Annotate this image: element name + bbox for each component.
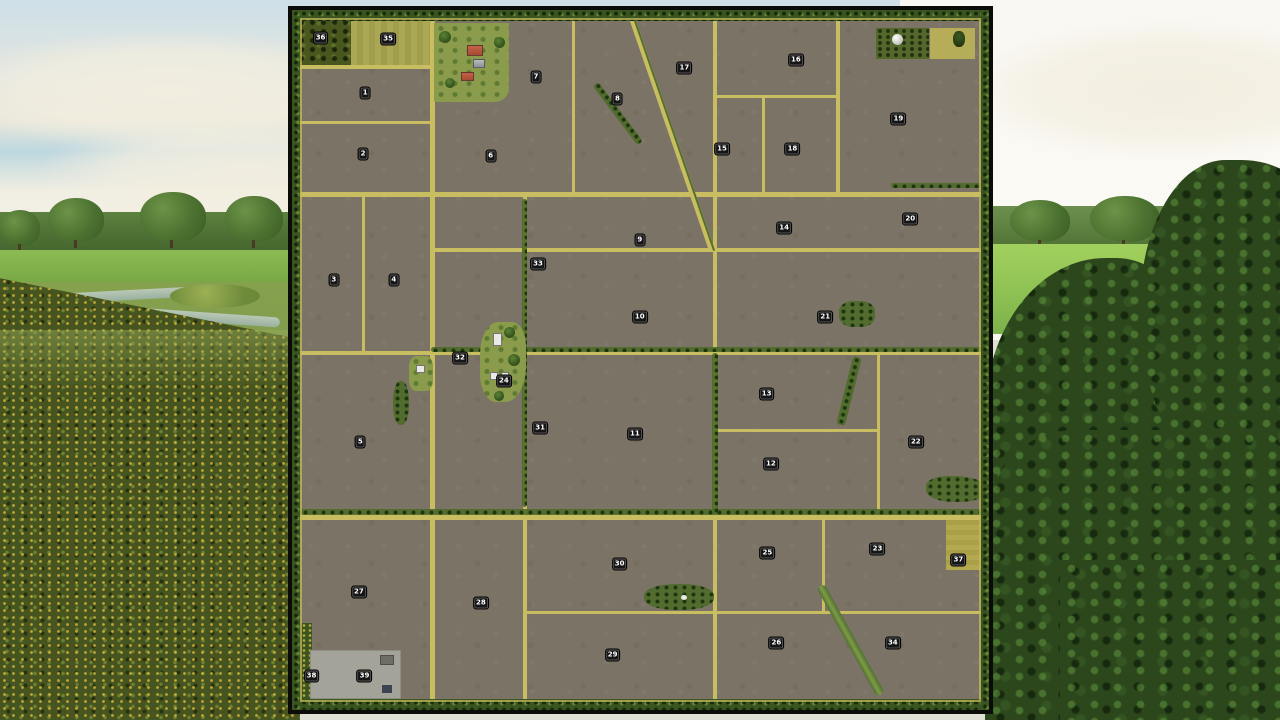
foreground-tree-canopy [1060,560,1280,720]
field-8-badge: 8 [612,92,623,105]
field-26-badge: 26 [769,636,785,649]
field-12-badge: 12 [763,457,779,470]
field-2-badge: 2 [358,148,369,161]
tree-icon [140,192,206,242]
field-10-badge: 10 [632,311,648,324]
field-15-badge: 15 [714,142,730,155]
field-7-badge: 7 [531,70,542,83]
field-34-badge: 34 [885,636,901,649]
tree-icon [1090,196,1160,242]
field-21-badge: 21 [817,311,833,324]
field-35-badge: 35 [380,33,396,46]
field-36-badge: 36 [313,32,329,45]
game-scene: 1234567891011121314151617181920212223242… [0,0,1280,720]
field-39-badge: 39 [357,670,373,683]
farm-map-panel: 1234567891011121314151617181920212223242… [288,6,993,714]
field-31-badge: 31 [532,421,548,434]
field-3-badge: 3 [328,274,339,287]
tree-icon [1010,200,1070,242]
field-23-badge: 23 [870,543,886,556]
tree-icon [48,198,104,242]
field-29-badge: 29 [605,648,621,661]
field-13-badge: 13 [759,388,775,401]
tree-icon [0,210,40,246]
field-38-badge: 38 [304,669,320,682]
field-24-badge: 24 [496,375,512,388]
field-30-badge: 30 [612,557,628,570]
field-haze [0,330,300,390]
field-20-badge: 20 [902,213,918,226]
field-32-badge: 32 [452,351,468,364]
field-37-badge: 37 [950,553,966,566]
field-1-badge: 1 [360,87,371,100]
field-9-badge: 9 [634,234,645,247]
field-33-badge: 33 [530,258,546,271]
field-27-badge: 27 [351,585,367,598]
field-6-badge: 6 [485,149,496,162]
field-16-badge: 16 [788,54,804,67]
tree-icon [225,196,283,242]
field-badges-layer: 1234567891011121314151617181920212223242… [292,10,989,710]
field-25-badge: 25 [759,546,775,559]
field-28-badge: 28 [473,596,489,609]
field-18-badge: 18 [785,142,801,155]
field-22-badge: 22 [908,435,924,448]
field-11-badge: 11 [627,427,643,440]
field-5-badge: 5 [355,435,366,448]
field-4-badge: 4 [388,274,399,287]
reeds [170,284,260,308]
field-14-badge: 14 [776,222,792,235]
field-19-badge: 19 [891,112,907,125]
field-17-badge: 17 [677,62,693,75]
cloud [960,20,1280,160]
